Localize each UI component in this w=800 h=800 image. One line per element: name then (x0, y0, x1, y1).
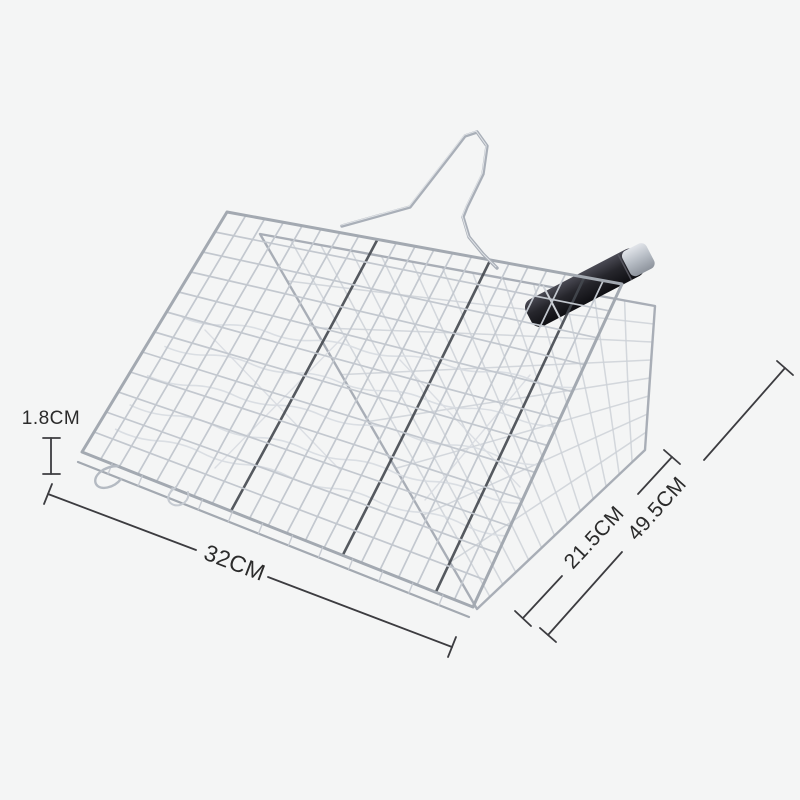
depth-label: 1.8CM (22, 408, 80, 429)
grill-basket-scene: 1.8CM 32CM 21.5CM 49.5CM (0, 0, 800, 800)
product-photo: 1.8CM 32CM 21.5CM 49.5CM (0, 0, 800, 800)
